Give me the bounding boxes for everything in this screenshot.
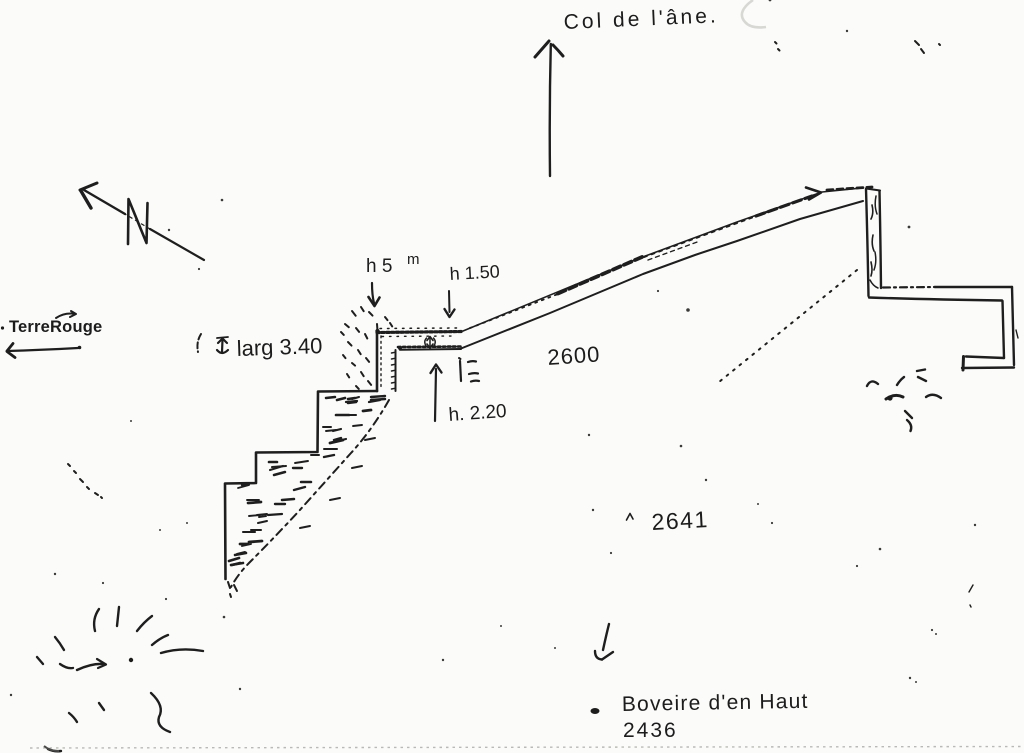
svg-text:TerreRouge: TerreRouge xyxy=(9,318,102,336)
svg-text:m: m xyxy=(407,251,420,268)
svg-text:2600: 2600 xyxy=(547,341,602,370)
svg-text:h 5: h 5 xyxy=(366,256,392,277)
svg-text:2436: 2436 xyxy=(623,719,678,742)
svg-text:2641: 2641 xyxy=(651,506,709,535)
svg-text:h 1.50: h 1.50 xyxy=(449,261,500,284)
svg-text:h. 2.20: h. 2.20 xyxy=(448,401,507,426)
svg-text:larg 3.40: larg 3.40 xyxy=(236,333,322,361)
svg-text:Boveire d'en Haut: Boveire d'en Haut xyxy=(622,690,809,716)
